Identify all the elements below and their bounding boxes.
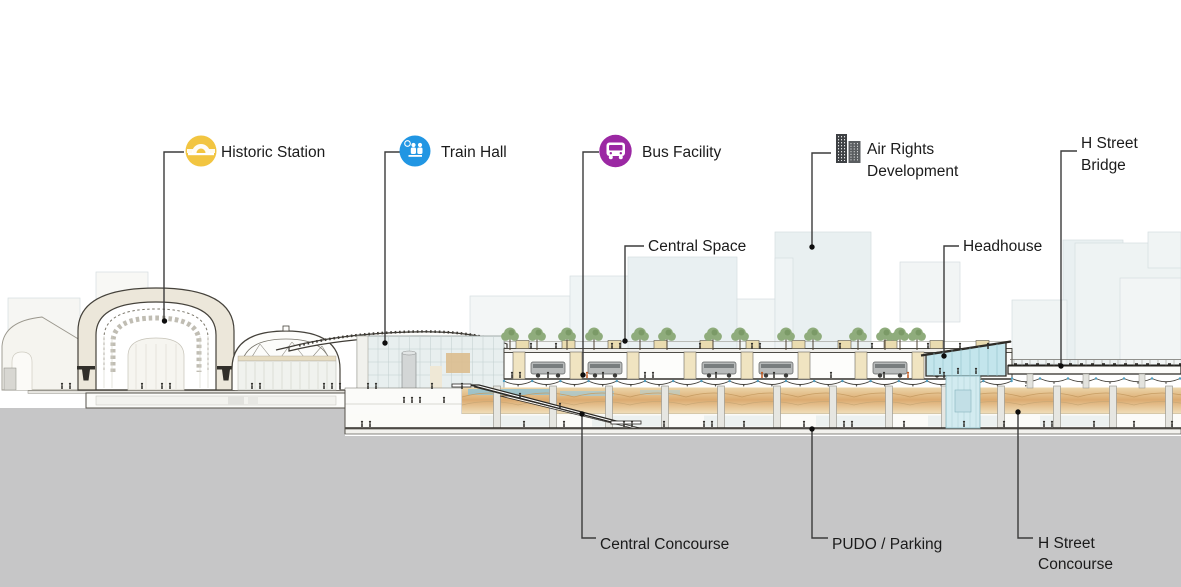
label-h-street-concourse-line1: H Street <box>1038 535 1096 552</box>
section-diagram: Historic Station Train Hall Bus Facility… <box>0 0 1181 587</box>
label-air-rights-line1: Air Rights <box>867 141 934 158</box>
buildings-icon <box>836 134 861 163</box>
label-h-street-bridge-line2: Bridge <box>1081 157 1126 174</box>
label-historic-station: Historic Station <box>221 144 325 161</box>
section-artwork <box>0 232 1181 587</box>
leader-dot-h-street-bridge <box>1058 363 1063 368</box>
label-central-concourse: Central Concourse <box>600 536 729 553</box>
label-central-space: Central Space <box>648 238 746 255</box>
leader-train-hall <box>385 152 400 343</box>
leader-dot-pudo-parking <box>809 426 814 431</box>
label-train-hall: Train Hall <box>441 144 507 161</box>
label-headhouse: Headhouse <box>963 238 1042 255</box>
leader-dot-train-hall <box>382 340 387 345</box>
leader-dot-historic-station <box>162 318 167 323</box>
leader-dot-headhouse <box>941 353 946 358</box>
leader-dot-central-space <box>622 338 627 343</box>
label-h-street-concourse-line2: Concourse <box>1038 556 1113 573</box>
leader-dot-air-rights <box>809 244 814 249</box>
section-drawing: Historic Station Train Hall Bus Facility… <box>0 0 1181 587</box>
leader-dot-central-concourse <box>579 411 584 416</box>
label-pudo-parking: PUDO / Parking <box>832 536 942 553</box>
leader-dot-h-street-concourse <box>1015 409 1020 414</box>
label-air-rights-line2: Development <box>867 163 959 180</box>
leader-dot-bus-facility <box>580 372 585 377</box>
bus-icon <box>599 135 631 167</box>
train-hall-icon <box>400 136 431 167</box>
label-bus-facility: Bus Facility <box>642 144 721 161</box>
label-h-street-bridge-line1: H Street <box>1081 135 1139 152</box>
historic-station-icon <box>186 136 217 167</box>
